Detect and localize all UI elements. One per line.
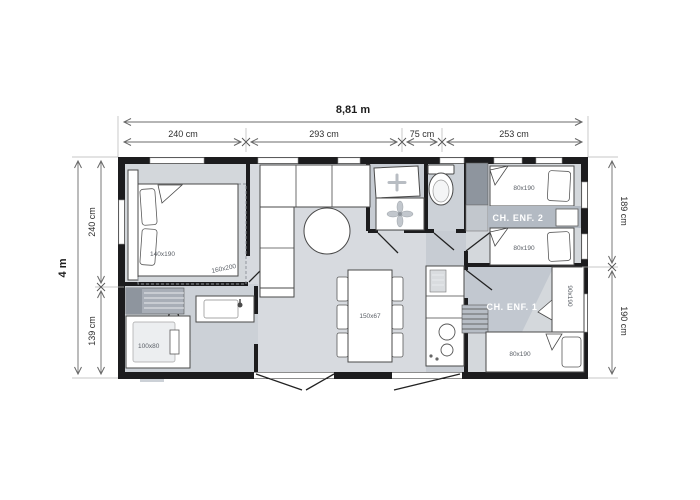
- dim-right-1: 189 cm: [619, 196, 629, 226]
- dining-table-label: 150x67: [359, 313, 381, 320]
- window-master-side: [119, 200, 125, 244]
- floor-plan: 140x190 160x200 100x80 150x67: [0, 0, 700, 500]
- window-bathroom: [338, 158, 360, 164]
- dining-chair: [392, 305, 403, 329]
- dim-left-1: 240 cm: [87, 207, 97, 237]
- kids-room-2-label: CH. ENF. 2: [492, 213, 543, 223]
- shower-label: 100x80: [138, 343, 160, 350]
- wardrobe-dark: [466, 163, 488, 205]
- sofa-top: [260, 165, 370, 207]
- window-living: [258, 158, 298, 164]
- master-bed-label: 140x190: [150, 251, 175, 258]
- window-master: [150, 158, 204, 164]
- sink-bowl: [439, 324, 455, 340]
- kids2-bed-bottom-label: 80x190: [513, 245, 535, 252]
- dim-total-height: 4 m: [57, 258, 69, 277]
- wardrobe-light: [466, 205, 488, 231]
- window-kids2-side-a: [582, 182, 588, 208]
- sofa-left: [260, 207, 294, 288]
- dining-chair: [337, 277, 348, 301]
- dim-total-width: 8,81 m: [336, 104, 370, 116]
- shower-tray: [133, 322, 175, 362]
- nightstand: [556, 209, 578, 226]
- knob: [429, 354, 432, 357]
- shower-column: [170, 330, 179, 354]
- wall-bottom: [118, 372, 588, 379]
- pillow: [140, 188, 157, 225]
- window-wc: [440, 158, 464, 164]
- sink-bowl-small: [441, 344, 453, 356]
- kitchen-appliance: [430, 270, 446, 292]
- pillow: [547, 231, 570, 261]
- dining-chair: [392, 277, 403, 301]
- window-kids2-a: [494, 158, 522, 164]
- window-kids2-side-b: [582, 234, 588, 259]
- dim-top-3: 75 cm: [410, 129, 435, 139]
- vanity-basin: [204, 300, 238, 318]
- dim-top-4: 253 cm: [499, 129, 529, 139]
- pillow: [562, 337, 581, 367]
- dining-chair: [337, 333, 348, 357]
- headboard-panel: [128, 170, 138, 280]
- kids1-bed-bottom-label: 80x190: [509, 351, 531, 358]
- dining-chair: [337, 305, 348, 329]
- floor-plan-page: 140x190 160x200 100x80 150x67: [0, 0, 700, 500]
- kids1-bed-side-label: 90x190: [566, 285, 573, 307]
- dim-top-1: 240 cm: [168, 129, 198, 139]
- window-kids2-b: [536, 158, 562, 164]
- dim-top-2: 293 cm: [309, 129, 339, 139]
- coffee-table: [304, 208, 350, 254]
- knob: [435, 357, 438, 360]
- wall-left: [118, 157, 125, 379]
- kids-room-1-label: CH. ENF. 1: [486, 302, 537, 312]
- kids2-bed-top-label: 80x190: [513, 185, 535, 192]
- toilet-seat: [433, 180, 449, 202]
- master-bedroom: 140x190 160x200: [128, 170, 246, 284]
- pillow: [547, 170, 571, 201]
- dining-area: 150x67: [337, 270, 403, 362]
- dim-left-2: 139 cm: [87, 316, 97, 346]
- shelf-unit-side: [126, 288, 142, 314]
- sofa-armrest: [260, 288, 294, 297]
- pillow: [140, 229, 157, 266]
- dim-right-2: 190 cm: [619, 306, 629, 336]
- dining-chair: [392, 333, 403, 357]
